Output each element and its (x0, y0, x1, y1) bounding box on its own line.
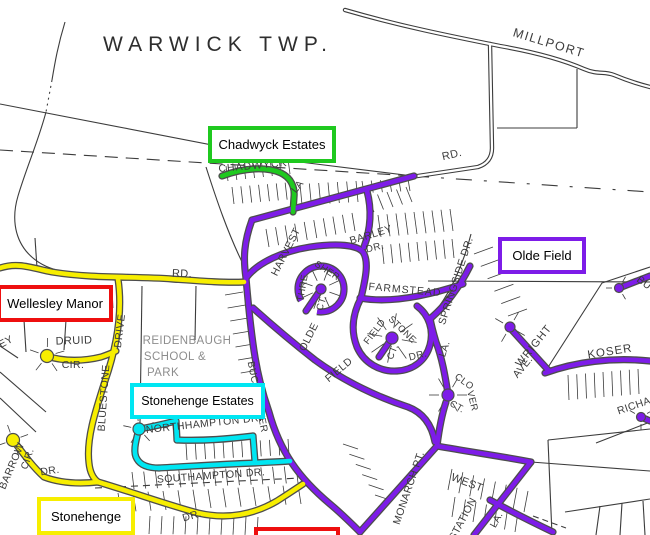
neighborhood-label-olde-field: Olde Field (498, 237, 586, 274)
street-map: WARWICK TWP. MILLPORT RD. RD. CHADWYCK L… (0, 0, 650, 535)
park-label-line3: PARK (147, 367, 179, 379)
neighborhood-label-text: Stonehenge (51, 509, 121, 524)
neighborhood-label-partial-bottom (254, 527, 340, 535)
neighborhood-label-text: Wellesley Manor (7, 296, 103, 311)
neighborhood-label-stonehenge-estates: Stonehenge Estates (130, 383, 265, 419)
neighborhood-label-stonehenge: Stonehenge (37, 497, 135, 535)
park-label-line1: REIDENBAUGH (143, 335, 232, 347)
neighborhood-label-chadwyck-estates: Chadwyck Estates (208, 126, 336, 163)
park-label-line2: SCHOOL & (144, 351, 206, 363)
neighborhood-label-text: Chadwyck Estates (219, 137, 326, 152)
neighborhood-label-wellesley-manor: Wellesley Manor (0, 285, 113, 322)
major-roads-layer (345, 10, 650, 177)
street-label-druid: DRUID (55, 334, 92, 347)
street-label-rd-mid: RD. (172, 268, 193, 281)
neighborhood-label-text: Stonehenge Estates (141, 394, 254, 408)
neighborhood-label-text: Olde Field (512, 248, 571, 263)
highlighted-routes-layer (0, 169, 650, 535)
street-label-druid-cir: CIR. (62, 359, 85, 371)
township-label: WARWICK TWP. (103, 33, 333, 57)
